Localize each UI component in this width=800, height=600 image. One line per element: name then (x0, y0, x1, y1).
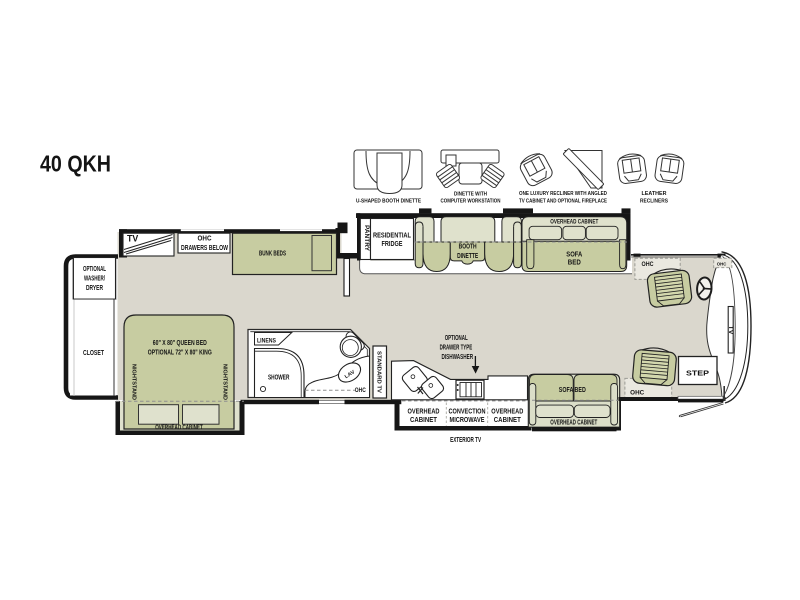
svg-text:CONVECTION: CONVECTION (449, 408, 486, 415)
svg-text:LEATHER: LEATHER (642, 191, 668, 197)
svg-text:OHC: OHC (630, 390, 645, 396)
svg-text:DINETTE: DINETTE (457, 253, 478, 260)
svg-text:RESIDENTIAL: RESIDENTIAL (373, 233, 412, 240)
svg-text:OVERHEAD: OVERHEAD (491, 408, 523, 415)
svg-text:U-SHAPED BOOTH DINETTE: U-SHAPED BOOTH DINETTE (356, 199, 421, 205)
svg-text:STANDARD TV: STANDARD TV (376, 351, 382, 393)
svg-text:STEP: STEP (686, 369, 709, 378)
svg-text:DISHWASHER: DISHWASHER (442, 354, 474, 361)
svg-text:OVERHEAD CABINET: OVERHEAD CABINET (550, 419, 597, 426)
svg-text:OVERHEAD CABINET: OVERHEAD CABINET (155, 425, 203, 432)
svg-text:CLOSET: CLOSET (83, 350, 105, 357)
svg-text:OHC: OHC (198, 236, 212, 243)
svg-text:BED: BED (568, 259, 581, 266)
svg-text:MICROWAVE: MICROWAVE (450, 417, 485, 424)
svg-text:LINENS: LINENS (257, 338, 277, 345)
svg-text:OHC: OHC (642, 262, 655, 268)
svg-text:TV CABINET AND OPTIONAL FIREPL: TV CABINET AND OPTIONAL FIREPLACE (519, 199, 607, 205)
svg-text:CABINET: CABINET (410, 417, 438, 424)
svg-text:OPTIONAL: OPTIONAL (445, 335, 468, 342)
svg-text:OVERHEAD CABINET: OVERHEAD CABINET (550, 219, 598, 226)
svg-text:DRAWERS BELOW: DRAWERS BELOW (181, 245, 228, 252)
svg-text:EXTERIOR TV: EXTERIOR TV (450, 437, 481, 444)
svg-text:WASHER/: WASHER/ (84, 276, 105, 283)
svg-text:OPTIONAL 72" X 80" KING: OPTIONAL 72" X 80" KING (148, 350, 212, 357)
svg-text:OPTIONAL: OPTIONAL (83, 266, 106, 273)
svg-text:SOFA BED: SOFA BED (559, 387, 586, 394)
svg-text:40 QKH: 40 QKH (40, 150, 111, 176)
svg-text:60" X 80" QUEEN BED: 60" X 80" QUEEN BED (153, 340, 207, 347)
svg-text:OVERHEAD: OVERHEAD (408, 408, 440, 415)
svg-text:BUNK BEDS: BUNK BEDS (259, 249, 286, 258)
svg-text:OHC: OHC (355, 388, 367, 394)
svg-text:COMPUTER WORKSTATION: COMPUTER WORKSTATION (441, 199, 501, 205)
svg-text:FRIDGE: FRIDGE (382, 241, 403, 248)
svg-text:CABINET: CABINET (494, 417, 522, 424)
svg-text:TV: TV (127, 234, 138, 244)
svg-text:DINETTE WITH: DINETTE WITH (454, 192, 487, 198)
svg-text:DRYER: DRYER (86, 285, 103, 292)
svg-text:PANTRY: PANTRY (363, 225, 370, 252)
svg-text:BOOTH: BOOTH (459, 244, 477, 251)
svg-text:NIGHTSTAND: NIGHTSTAND (131, 364, 137, 400)
svg-text:DRAWER TYPE: DRAWER TYPE (440, 345, 473, 352)
svg-text:SHOWER: SHOWER (268, 374, 290, 381)
svg-text:SOFA: SOFA (566, 251, 582, 258)
svg-text:ONE LUXURY RECLINER WITH ANGLE: ONE LUXURY RECLINER WITH ANGLED (519, 191, 607, 197)
svg-text:NIGHTSTAND: NIGHTSTAND (222, 364, 228, 400)
svg-text:OHC: OHC (717, 261, 727, 267)
svg-text:TV: TV (727, 326, 733, 335)
svg-text:RECLINERS: RECLINERS (640, 199, 668, 205)
